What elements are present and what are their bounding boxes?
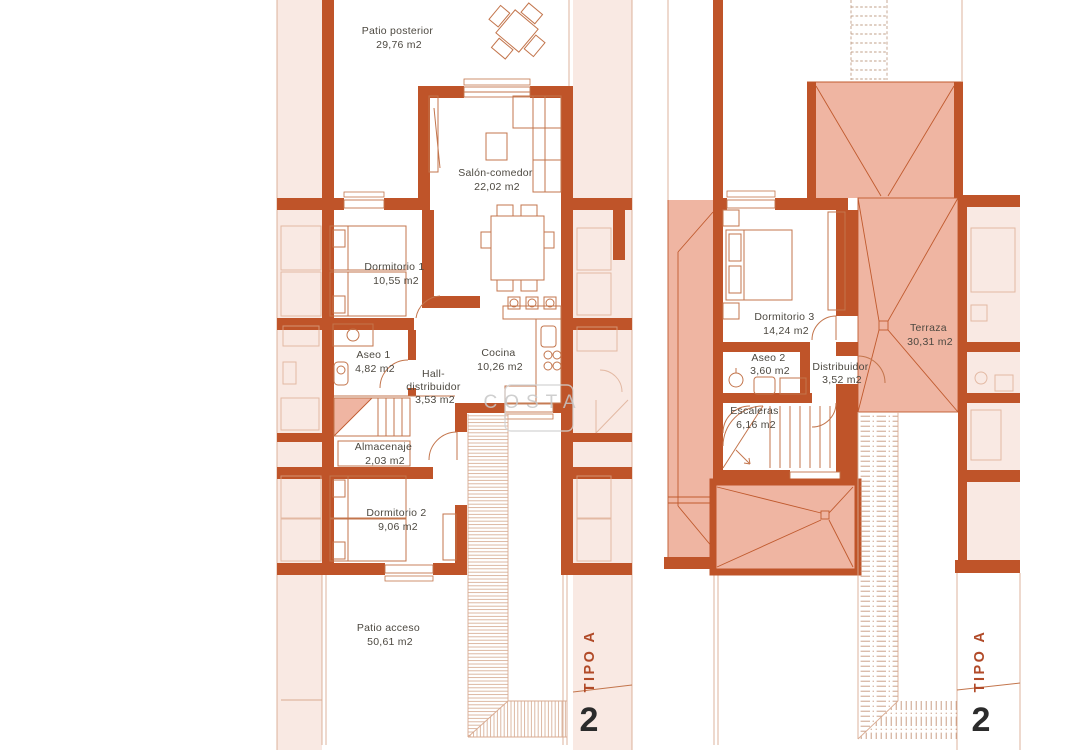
patio-table	[476, 0, 558, 72]
right-plan-left-strip	[664, 0, 718, 745]
left-tipo-label: TIPO A	[582, 630, 598, 693]
upper-roof	[807, 0, 963, 198]
dining-set	[481, 205, 554, 291]
label-escaleras: Escaleras 6,16 m2	[730, 405, 782, 431]
label-cocina: Cocina 10,26 m2	[477, 347, 523, 373]
floorplan-svg: TIPO A 2	[0, 0, 1080, 750]
dorm3-furniture	[723, 210, 845, 319]
label-dormitorio-3: Dormitorio 3 14,24 m2	[754, 311, 817, 337]
left-plan-labels: Patio posterior 29,76 m2 Salón-comedor 2…	[355, 25, 536, 648]
dorm2-wardrobe	[443, 514, 456, 560]
label-almacenaje: Almacenaje 2,03 m2	[355, 441, 416, 467]
floorplan-canvas: TIPO A 2	[0, 0, 1080, 750]
left-unit-number: 2	[580, 701, 599, 739]
left-neighbor-band	[277, 0, 322, 750]
left-walkway	[468, 414, 567, 737]
porch-roof	[713, 482, 858, 572]
right-top-walkway	[851, 0, 887, 80]
right-plan: TIPO A 2 Dormitorio 3 14,24 m2 Aseo 2 3,…	[664, 0, 1020, 750]
label-patio-acceso: Patio acceso 50,61 m2	[357, 622, 423, 648]
label-dormitorio-1: Dormitorio 1 10,55 m2	[364, 261, 427, 287]
label-aseo-2: Aseo 2 3,60 m2	[750, 352, 790, 377]
right-unit-number: 2	[972, 701, 991, 739]
watermark-text: COSTA	[483, 392, 582, 413]
right-walkway	[858, 412, 957, 739]
left-tipo-band: TIPO A 2	[565, 0, 632, 750]
right-tipo-band: TIPO A 2	[957, 573, 1020, 750]
label-dormitorio-2: Dormitorio 2 9,06 m2	[366, 507, 429, 533]
label-aseo-1: Aseo 1 4,82 m2	[355, 349, 395, 375]
label-patio-posterior: Patio posterior 29,76 m2	[362, 25, 437, 51]
left-plan: TIPO A 2	[277, 0, 632, 750]
coffee-table	[486, 133, 507, 160]
right-tipo-label: TIPO A	[972, 630, 988, 693]
label-salon-comedor: Salón-comedor 22,02 m2	[458, 167, 536, 193]
label-hall-distribuidor: Hall- distribuidor 3,53 m2	[406, 368, 464, 406]
